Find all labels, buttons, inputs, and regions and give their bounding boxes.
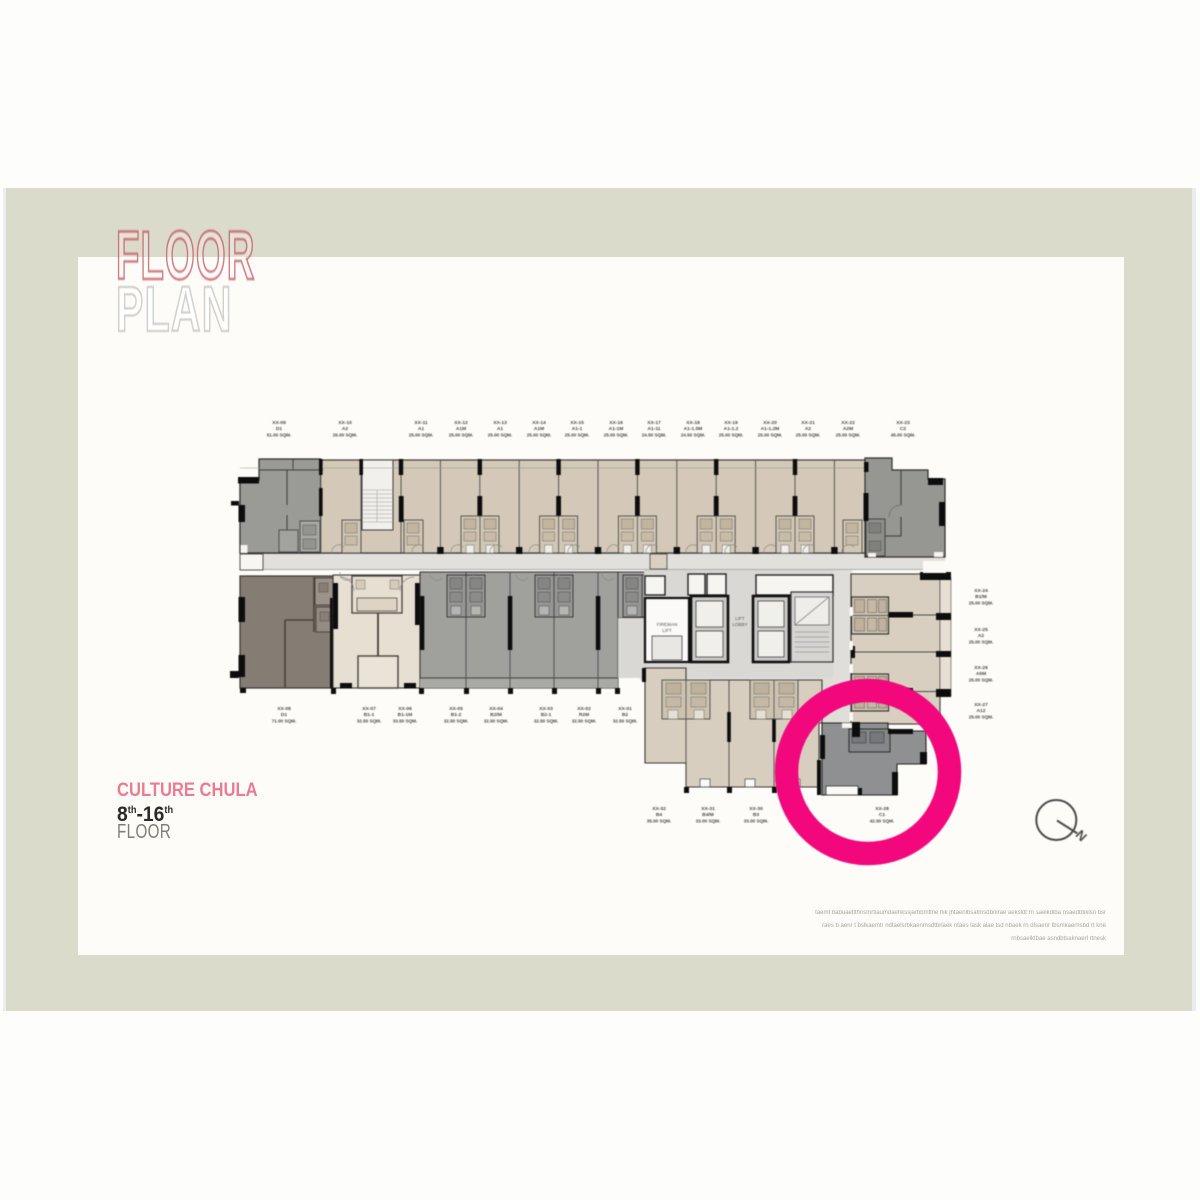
svg-text:XX-10A226.00 SQM.: XX-10A226.00 SQM. xyxy=(333,420,358,437)
svg-text:LIFT: LIFT xyxy=(662,628,672,633)
svg-text:XX-27A1225.00 SQM.: XX-27A1225.00 SQM. xyxy=(969,702,994,719)
svg-text:XX-01B232.50 SQM.: XX-01B232.50 SQM. xyxy=(613,706,638,723)
svg-text:XX-19A1-1.225.00 SQM.: XX-19A1-1.225.00 SQM. xyxy=(719,420,744,437)
svg-text:XX-31B4/M33.00 SQM.: XX-31B4/M33.00 SQM. xyxy=(696,806,721,823)
svg-text:XX-28C142.50 SQM.: XX-28C142.50 SQM. xyxy=(870,806,895,823)
svg-text:XX-23C245.00 SQM.: XX-23C245.00 SQM. xyxy=(891,420,916,437)
svg-text:XX-17A1-1124.50 SQM.: XX-17A1-1124.50 SQM. xyxy=(642,420,667,437)
svg-text:XX-04B2/M32.50 SQM.: XX-04B2/M32.50 SQM. xyxy=(484,706,509,723)
svg-text:XX-02R2M32.50 SQM.: XX-02R2M32.50 SQM. xyxy=(572,706,597,723)
svg-text:LIFT: LIFT xyxy=(735,616,745,621)
svg-text:N: N xyxy=(1073,827,1090,844)
svg-text:XX-32B435.00 SQM.: XX-32B435.00 SQM. xyxy=(647,806,672,823)
svg-text:XX-24B1/M25.00 SQM.: XX-24B1/M25.00 SQM. xyxy=(969,588,994,605)
svg-text:XX-30B333.00 SQM.: XX-30B333.00 SQM. xyxy=(744,806,769,823)
svg-text:FIREMAN: FIREMAN xyxy=(657,622,678,627)
svg-text:XX-06B1-1M33.50 SQM.: XX-06B1-1M33.50 SQM. xyxy=(393,706,418,723)
svg-text:XX-11A125.00 SQM.: XX-11A125.00 SQM. xyxy=(409,420,434,437)
svg-text:XX-09D151.00 SQM.: XX-09D151.00 SQM. xyxy=(267,420,292,437)
svg-text:XX-20A1-1.2M25.00 SQM.: XX-20A1-1.2M25.00 SQM. xyxy=(758,420,783,437)
svg-text:XX-18A1-1.5M24.50 SQM.: XX-18A1-1.5M24.50 SQM. xyxy=(681,420,706,437)
svg-text:XX-13A125.00 SQM.: XX-13A125.00 SQM. xyxy=(488,420,513,437)
svg-text:XX-21A225.00 SQM.: XX-21A225.00 SQM. xyxy=(796,420,821,437)
svg-text:XX-08D171.00 SQM.: XX-08D171.00 SQM. xyxy=(272,706,297,723)
svg-text:XX-03B2-132.50 SQM.: XX-03B2-132.50 SQM. xyxy=(534,706,559,723)
svg-text:XX-14A1M25.00 SQM.: XX-14A1M25.00 SQM. xyxy=(527,420,552,437)
svg-text:XX-05B1-232.50 SQM.: XX-05B1-232.50 SQM. xyxy=(444,706,469,723)
svg-text:LOBBY: LOBBY xyxy=(732,622,747,627)
svg-text:XX-25A225.00 SQM.: XX-25A225.00 SQM. xyxy=(969,627,994,644)
svg-text:XX-26A5M25.00 SQM.: XX-26A5M25.00 SQM. xyxy=(969,665,994,682)
svg-text:XX-16A1-1M25.00 SQM.: XX-16A1-1M25.00 SQM. xyxy=(604,420,629,437)
svg-text:XX-12A1M25.00 SQM.: XX-12A1M25.00 SQM. xyxy=(449,420,474,437)
svg-text:XX-15A1-125.00 SQM.: XX-15A1-125.00 SQM. xyxy=(565,420,590,437)
svg-text:XX-07B1-132.50 SQM.: XX-07B1-132.50 SQM. xyxy=(357,706,382,723)
svg-text:XX-22A2M25.00 SQM.: XX-22A2M25.00 SQM. xyxy=(836,420,861,437)
